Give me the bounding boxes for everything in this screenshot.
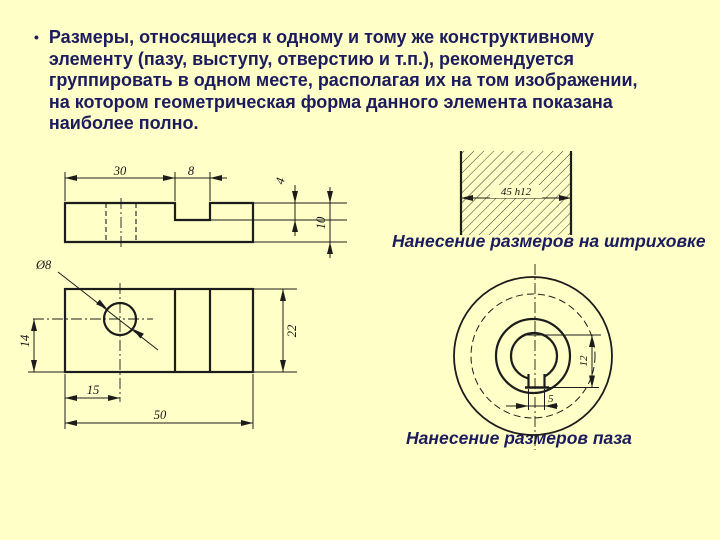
dim-30-8: 30 8 [65,164,227,201]
bullet-marker: • [32,27,39,135]
dim-label-5: 5 [548,393,554,405]
dim-label-12: 12 [578,355,590,367]
dim-label-45h12: 45 h12 [501,186,532,198]
dim-dia8: Ø8 [35,258,158,350]
dim-15-50: 15 50 [65,374,253,429]
dim-label-dia8: Ø8 [35,258,52,272]
dim-label-15: 15 [87,383,100,397]
dim-label-30: 30 [113,164,127,178]
front-view: 30 8 4 10 [65,164,347,258]
front-view-outline [65,203,253,242]
dim-14: 14 [18,319,65,372]
keyway-circle-drawing: 12 5 [430,258,650,458]
dim-label-50: 50 [154,408,167,422]
dim-label-4: 4 [273,176,288,186]
dim-label-14: 14 [18,335,32,348]
dim-4-10: 4 10 [210,176,347,258]
caption-hatch: Нанесение размеров на штриховке [392,231,706,252]
top-view-outline [65,289,253,372]
part-views-drawing: 30 8 4 10 [15,155,365,445]
dim-22: 22 [253,289,299,372]
dim-label-22: 22 [285,325,299,338]
dim-label-8: 8 [188,164,195,178]
pitch-circle [471,294,595,418]
slide-bullet-paragraph: • Размеры, относящиеся к одному и тому ж… [32,27,698,135]
top-view: Ø8 14 15 50 [18,258,299,429]
bullet-text: Размеры, относящиеся к одному и тому же … [49,27,638,135]
keyway-slot [525,370,549,388]
dim-label-10: 10 [314,216,328,229]
